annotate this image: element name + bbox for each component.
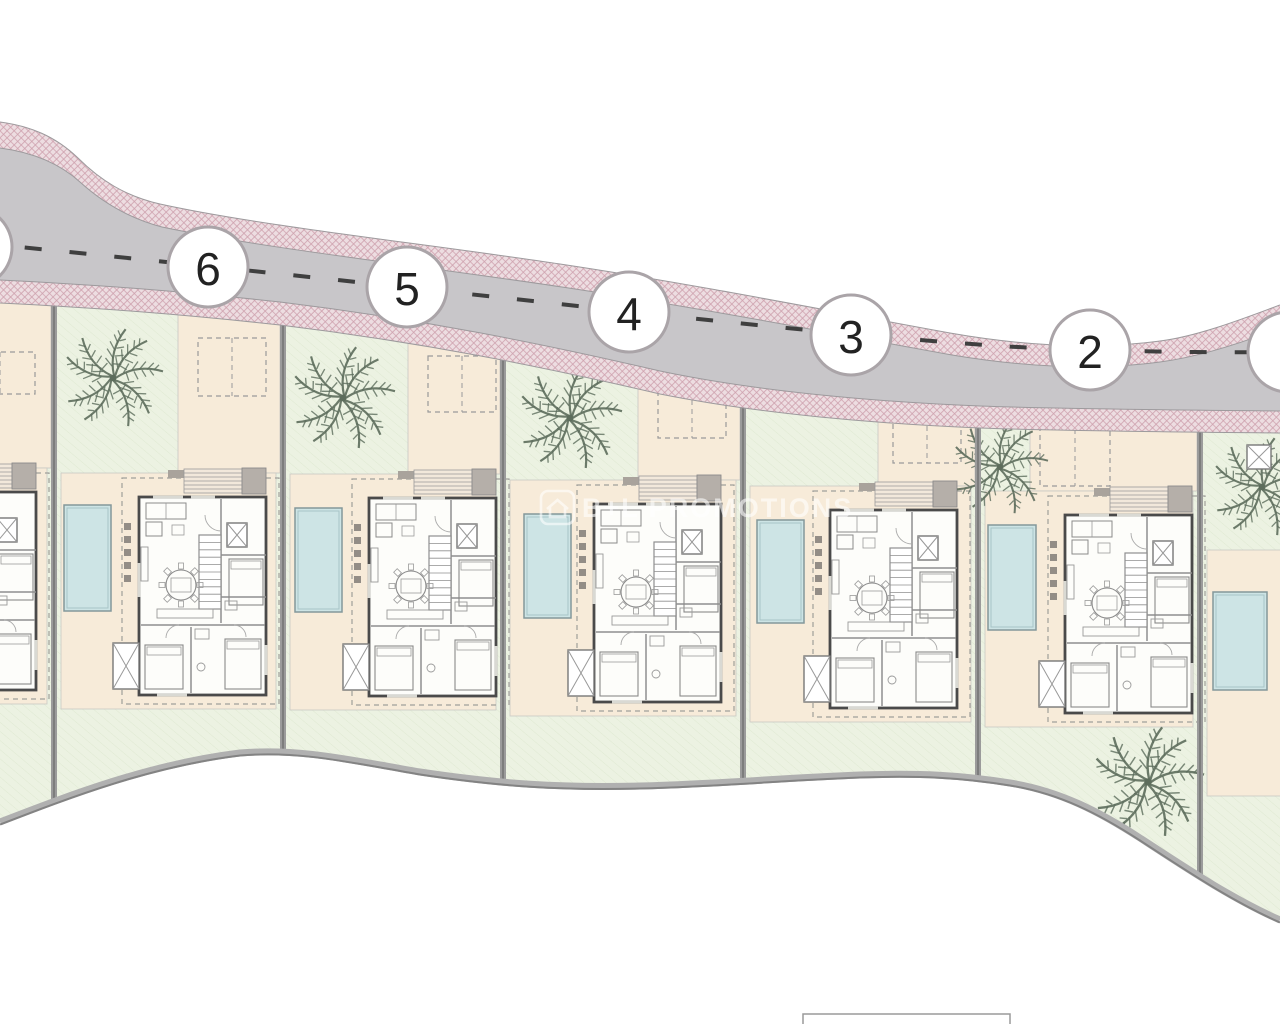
stairs [1125,553,1147,627]
watermark: B+L PROMOTIONS [541,491,853,524]
lightwell-xbox [227,523,247,547]
swimming-pool [988,525,1036,630]
lightwell-xbox [682,530,702,554]
site-plan-page: 65432B+L PROMOTIONS [0,0,1280,1024]
stairs [199,535,221,609]
lightwell-xbox [113,643,139,689]
lightwell-xbox [918,536,938,560]
plot-number-label: 4 [616,288,642,340]
plot-badge-2: 2 [1050,310,1130,390]
swimming-pool [64,505,111,611]
swimming-pool [1213,592,1267,690]
lightwell-xbox [568,650,594,696]
villa-floorplan [343,469,509,705]
villa-floorplan [1039,486,1205,722]
plot-number-label: 6 [195,243,221,295]
lightwell-xbox [804,656,830,702]
plot-badge-3: 3 [811,295,891,375]
pergola-canopy [1110,486,1192,512]
plot-badge-4: 4 [589,272,669,352]
swimming-pool [524,514,571,618]
villa-floorplan [113,468,279,704]
pergola-canopy [414,469,496,495]
stairs [429,536,451,610]
stairs [654,542,676,616]
stairs [890,548,912,622]
lightwell-xbox [0,518,17,542]
lightwell-xbox [1247,445,1271,469]
pergola-canopy [184,468,266,494]
plot-7-partial [0,250,51,704]
lightwell-xbox [343,644,369,690]
lightwell-xbox [457,524,477,548]
site-plan-svg: 65432B+L PROMOTIONS [0,0,1280,1024]
plot-number-label: 5 [394,263,420,315]
swimming-pool [757,520,804,623]
pergola-canopy [0,463,36,489]
plot-badge-5: 5 [367,247,447,327]
lightwell-xbox [1039,661,1065,707]
pergola-canopy [875,481,957,507]
lightwell-xbox [1153,541,1173,565]
legend-stub [803,1014,1010,1024]
plot-number-label: 2 [1077,326,1103,378]
plot-badge-6: 6 [168,227,248,307]
plot-number-label: 3 [838,311,864,363]
swimming-pool [295,508,342,612]
watermark-text: B+L PROMOTIONS [582,493,853,523]
